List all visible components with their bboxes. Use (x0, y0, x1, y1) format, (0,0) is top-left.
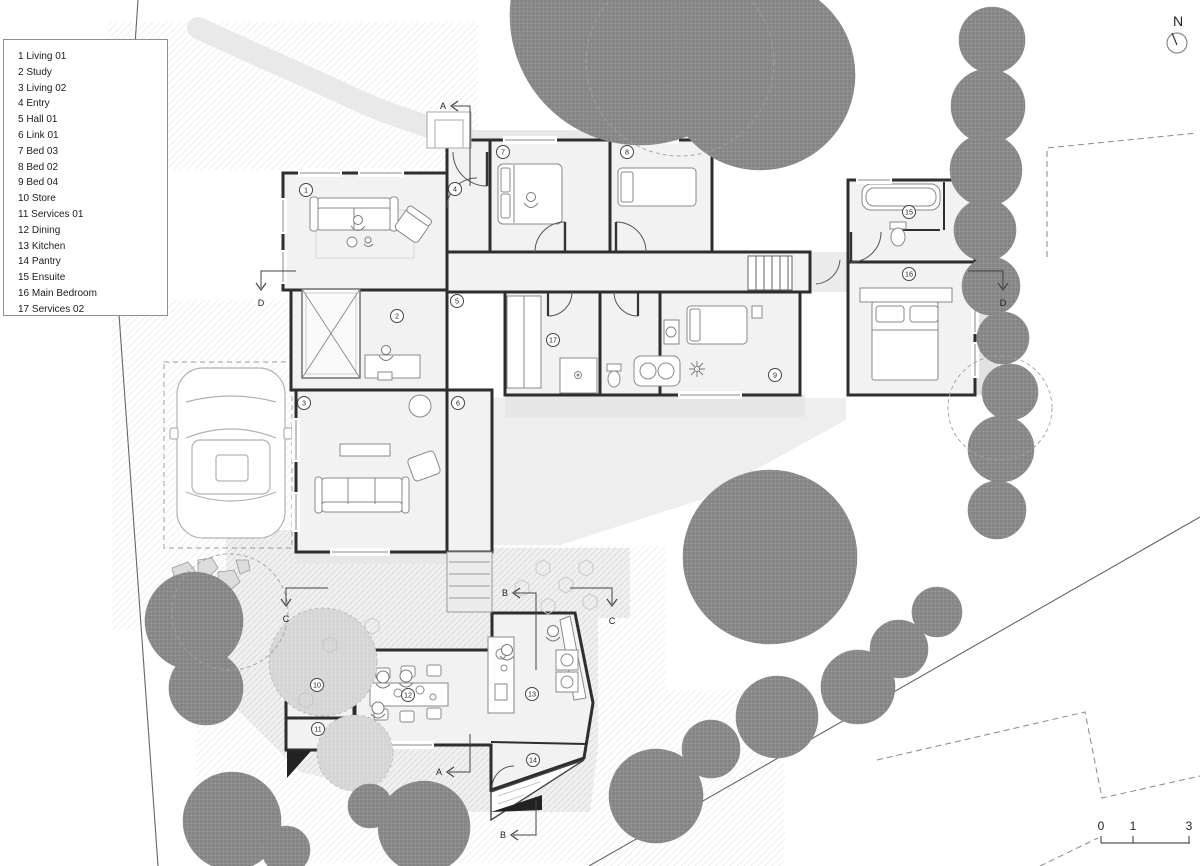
legend-item: 8 Bed 02 (18, 160, 161, 176)
scale-tick-label: 0 (1098, 819, 1105, 833)
stairs-hall (748, 256, 792, 290)
room-link-01 (447, 390, 492, 552)
legend-item: 12 Dining (18, 223, 161, 239)
site-plan-svg: 1234567891011121314151617 AABBCCDD N 013 (0, 0, 1200, 866)
legend-item: 2 Study (18, 65, 161, 81)
svg-text:15: 15 (905, 208, 913, 217)
north-needle (1172, 33, 1177, 45)
room-marker-12: 12 (402, 689, 415, 702)
plant (689, 361, 705, 377)
tree (954, 199, 1016, 261)
legend-item: 10 Store (18, 191, 161, 207)
room-marker-4: 4 (449, 183, 462, 196)
svg-text:14: 14 (529, 756, 537, 765)
svg-text:C: C (609, 616, 616, 626)
room-marker-14: 14 (527, 754, 540, 767)
sofa-living-02 (315, 477, 409, 513)
legend-item: 1 Living 01 (18, 49, 161, 65)
tree-light (269, 608, 377, 716)
room-marker-8: 8 (621, 146, 634, 159)
svg-text:17: 17 (549, 336, 557, 345)
room-marker-11: 11 (312, 723, 325, 736)
north-label: N (1173, 13, 1183, 29)
legend-item: 14 Pantry (18, 254, 161, 270)
svg-text:9: 9 (773, 371, 777, 380)
svg-text:7: 7 (501, 148, 505, 157)
svg-text:4: 4 (453, 185, 457, 194)
north-dial (1167, 33, 1187, 53)
legend-item: 7 Bed 03 (18, 144, 161, 160)
scale-tick-label: 3 (1186, 819, 1193, 833)
legend-item: 6 Link 01 (18, 128, 161, 144)
svg-text:A: A (440, 101, 446, 111)
tree (962, 257, 1020, 315)
svg-text:6: 6 (456, 399, 460, 408)
svg-text:D: D (1000, 298, 1007, 308)
room-marker-9: 9 (769, 369, 782, 382)
legend-item: 16 Main Bedroom (18, 286, 161, 302)
svg-text:10: 10 (313, 681, 321, 690)
legend-item: 11 Services 01 (18, 207, 161, 223)
bed-02 (618, 168, 696, 206)
room-marker-5: 5 (451, 295, 464, 308)
room-marker-17: 17 (547, 334, 560, 347)
round-table (409, 395, 431, 417)
scale-bar: 013 (1098, 819, 1193, 843)
tree (982, 364, 1038, 420)
entry-porch (427, 112, 471, 148)
tree (821, 650, 895, 724)
legend-list: 1 Living 012 Study3 Living 024 Entry5 Ha… (18, 49, 161, 318)
room-marker-1: 1 (300, 184, 313, 197)
tree-light (317, 715, 393, 791)
svg-text:A: A (436, 767, 442, 777)
room-marker-16: 16 (903, 268, 916, 281)
scale-tick-label: 1 (1130, 819, 1137, 833)
car (170, 368, 292, 538)
svg-text:5: 5 (455, 297, 459, 306)
tree (736, 676, 818, 758)
room-marker-7: 7 (497, 146, 510, 159)
svg-text:13: 13 (528, 690, 536, 699)
room-marker-3: 3 (298, 397, 311, 410)
legend-item: 15 Ensuite (18, 270, 161, 286)
room-marker-6: 6 (452, 397, 465, 410)
svg-text:3: 3 (302, 399, 306, 408)
tree (951, 69, 1025, 143)
svg-text:C: C (283, 614, 290, 624)
legend-item: 3 Living 02 (18, 81, 161, 97)
svg-text:8: 8 (625, 148, 629, 157)
legend-item: 4 Entry (18, 96, 161, 112)
legend-item: 17 Services 02 (18, 302, 161, 318)
svg-text:2: 2 (395, 312, 399, 321)
laptop (378, 372, 392, 380)
tree (950, 134, 1022, 206)
skylight-void (302, 289, 360, 378)
north-arrow: N (1167, 13, 1187, 53)
site-plan-canvas: 1234567891011121314151617 AABBCCDD N 013… (0, 0, 1200, 866)
tree (609, 749, 703, 843)
main-bed (860, 288, 952, 380)
svg-text:11: 11 (314, 725, 321, 734)
room-marker-2: 2 (391, 310, 404, 323)
room-marker-13: 13 (526, 688, 539, 701)
svg-text:B: B (502, 588, 508, 598)
tree (968, 416, 1034, 482)
coffee-table (347, 237, 357, 247)
legend: 1 Living 012 Study3 Living 024 Entry5 Ha… (3, 39, 168, 316)
sofa (310, 197, 398, 231)
tree (169, 651, 243, 725)
room-marker-10: 10 (311, 679, 324, 692)
tree (378, 781, 470, 866)
svg-text:D: D (258, 298, 265, 308)
tree (683, 470, 857, 644)
tree (348, 784, 392, 828)
legend-item: 5 Hall 01 (18, 112, 161, 128)
steps-link (447, 552, 492, 612)
tree (959, 7, 1025, 73)
svg-text:16: 16 (905, 270, 913, 279)
room-marker-15: 15 (903, 206, 916, 219)
legend-item: 9 Bed 04 (18, 175, 161, 191)
svg-text:1: 1 (304, 186, 308, 195)
svg-text:12: 12 (404, 691, 412, 700)
tree (968, 481, 1026, 539)
legend-item: 13 Kitchen (18, 239, 161, 255)
parking-bay (164, 362, 292, 548)
svg-text:B: B (500, 830, 506, 840)
console (340, 444, 390, 456)
